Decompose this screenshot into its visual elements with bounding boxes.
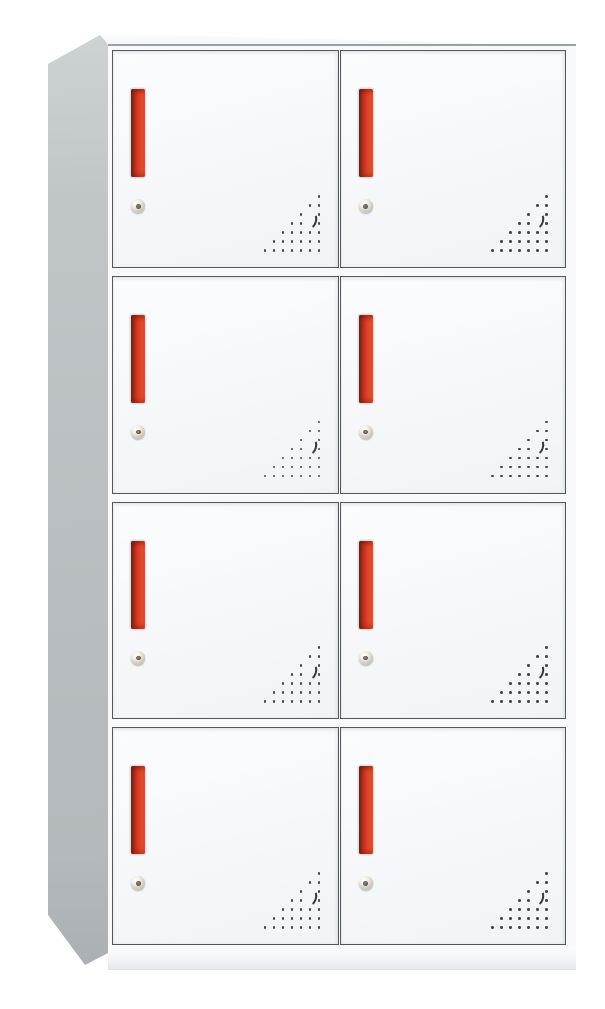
vent-hole-dot bbox=[318, 890, 321, 893]
vent-hole-dot bbox=[291, 249, 294, 252]
vent-hole-dot bbox=[518, 222, 521, 225]
vent-hole-dot bbox=[518, 917, 521, 920]
vent-hole-dot bbox=[536, 700, 539, 703]
vent-hole-dot bbox=[318, 682, 321, 685]
vent-hole-dot bbox=[545, 240, 548, 243]
vent-hole-dot bbox=[291, 691, 294, 694]
vent-hole-dot bbox=[273, 691, 276, 694]
vent-hole-dot bbox=[282, 682, 285, 685]
cabinet-front-face bbox=[108, 44, 576, 970]
vent-hole-dot bbox=[545, 691, 548, 694]
keyhole-lock bbox=[359, 876, 373, 890]
locker-door-r3c1 bbox=[112, 502, 339, 720]
vent-hole-dot bbox=[264, 700, 267, 703]
vent-hole-dot bbox=[309, 204, 312, 207]
keyhole-lock bbox=[131, 876, 145, 890]
vent-hole-dot bbox=[300, 249, 303, 252]
vent-hole-dot bbox=[509, 457, 512, 460]
vent-hole-dot bbox=[491, 475, 494, 478]
vent-hole-dot bbox=[300, 222, 303, 225]
vent-hole-dot bbox=[536, 655, 539, 658]
vent-hole-dot bbox=[300, 439, 303, 442]
vent-hole-dot bbox=[273, 249, 276, 252]
vent-hole-dot bbox=[291, 908, 294, 911]
vent-hole-dot bbox=[536, 908, 539, 911]
vent-hole-dot bbox=[318, 439, 321, 442]
door-handle bbox=[359, 89, 373, 177]
locker-door-r2c2 bbox=[340, 276, 567, 494]
vent-hole-dot bbox=[309, 682, 312, 685]
vent-hole-dot bbox=[300, 899, 303, 902]
vent-hole-dot bbox=[318, 646, 321, 649]
vent-hole-dot bbox=[300, 231, 303, 234]
keyhole-lock bbox=[359, 651, 373, 665]
vent-hole-dot bbox=[527, 682, 530, 685]
vent-hole-dot bbox=[509, 691, 512, 694]
vent-hole-dot bbox=[527, 691, 530, 694]
vent-hole-dot bbox=[509, 926, 512, 929]
vent-hole-dot bbox=[545, 421, 548, 424]
vent-hole-dot bbox=[309, 240, 312, 243]
vent-hole-dot bbox=[291, 240, 294, 243]
vent-hole-dot bbox=[264, 249, 267, 252]
vent-hole-dot bbox=[291, 222, 294, 225]
vent-hole-dot bbox=[536, 249, 539, 252]
vent-hole-dot bbox=[518, 700, 521, 703]
vent-hole-dot bbox=[545, 439, 548, 442]
vent-hole-dot bbox=[318, 231, 321, 234]
ventilation-holes bbox=[488, 192, 551, 255]
vent-hole-dot bbox=[291, 448, 294, 451]
vent-hole-dot bbox=[318, 204, 321, 207]
vent-crescent-mark bbox=[530, 888, 546, 908]
vent-hole-dot bbox=[536, 231, 539, 234]
door-handle bbox=[359, 766, 373, 854]
vent-hole-dot bbox=[518, 466, 521, 469]
vent-hole-dot bbox=[318, 908, 321, 911]
vent-hole-dot bbox=[536, 430, 539, 433]
vent-hole-dot bbox=[518, 475, 521, 478]
vent-hole-dot bbox=[318, 664, 321, 667]
vent-hole-dot bbox=[318, 673, 321, 676]
vent-crescent-mark bbox=[530, 210, 546, 230]
vent-hole-dot bbox=[318, 872, 321, 875]
vent-hole-dot bbox=[536, 691, 539, 694]
vent-hole-dot bbox=[545, 448, 548, 451]
vent-hole-dot bbox=[545, 700, 548, 703]
vent-hole-dot bbox=[536, 466, 539, 469]
vent-hole-dot bbox=[509, 249, 512, 252]
vent-hole-dot bbox=[527, 700, 530, 703]
vent-hole-dot bbox=[545, 872, 548, 875]
vent-hole-dot bbox=[291, 673, 294, 676]
vent-hole-dot bbox=[309, 430, 312, 433]
vent-hole-dot bbox=[545, 682, 548, 685]
vent-crescent-mark bbox=[302, 436, 318, 456]
vent-hole-dot bbox=[527, 222, 530, 225]
vent-hole-dot bbox=[264, 475, 267, 478]
vent-hole-dot bbox=[536, 240, 539, 243]
vent-hole-dot bbox=[318, 655, 321, 658]
vent-hole-dot bbox=[291, 466, 294, 469]
vent-hole-dot bbox=[282, 917, 285, 920]
vent-hole-dot bbox=[282, 240, 285, 243]
vent-hole-dot bbox=[545, 890, 548, 893]
vent-hole-dot bbox=[527, 240, 530, 243]
vent-hole-dot bbox=[545, 646, 548, 649]
vent-hole-dot bbox=[318, 899, 321, 902]
vent-crescent-mark bbox=[530, 436, 546, 456]
vent-hole-dot bbox=[518, 448, 521, 451]
vent-hole-dot bbox=[527, 890, 530, 893]
vent-hole-dot bbox=[318, 430, 321, 433]
vent-hole-dot bbox=[282, 231, 285, 234]
locker-door-r2c1 bbox=[112, 276, 339, 494]
cabinet-side-panel bbox=[48, 33, 110, 965]
vent-hole-dot bbox=[309, 691, 312, 694]
door-handle bbox=[131, 541, 145, 629]
vent-hole-dot bbox=[500, 240, 503, 243]
vent-hole-dot bbox=[282, 926, 285, 929]
vent-hole-dot bbox=[545, 881, 548, 884]
vent-hole-dot bbox=[500, 700, 503, 703]
vent-hole-dot bbox=[509, 917, 512, 920]
door-handle bbox=[359, 541, 373, 629]
vent-hole-dot bbox=[536, 457, 539, 460]
vent-hole-dot bbox=[527, 475, 530, 478]
vent-hole-dot bbox=[545, 457, 548, 460]
vent-hole-dot bbox=[545, 466, 548, 469]
locker-door-r4c1 bbox=[112, 727, 339, 945]
vent-hole-dot bbox=[545, 204, 548, 207]
vent-hole-dot bbox=[300, 457, 303, 460]
locker-door-r1c2 bbox=[340, 50, 567, 268]
vent-hole-dot bbox=[545, 195, 548, 198]
vent-hole-dot bbox=[491, 700, 494, 703]
vent-hole-dot bbox=[300, 448, 303, 451]
vent-hole-dot bbox=[536, 475, 539, 478]
vent-hole-dot bbox=[273, 475, 276, 478]
vent-hole-dot bbox=[318, 917, 321, 920]
vent-hole-dot bbox=[318, 881, 321, 884]
vent-hole-dot bbox=[545, 899, 548, 902]
vent-hole-dot bbox=[309, 700, 312, 703]
vent-hole-dot bbox=[545, 430, 548, 433]
vent-hole-dot bbox=[300, 890, 303, 893]
vent-hole-dot bbox=[509, 475, 512, 478]
vent-hole-dot bbox=[282, 475, 285, 478]
vent-hole-dot bbox=[273, 917, 276, 920]
door-handle bbox=[131, 766, 145, 854]
vent-hole-dot bbox=[318, 457, 321, 460]
vent-hole-dot bbox=[518, 926, 521, 929]
vent-hole-dot bbox=[500, 917, 503, 920]
vent-hole-dot bbox=[509, 231, 512, 234]
vent-hole-dot bbox=[527, 926, 530, 929]
vent-hole-dot bbox=[527, 213, 530, 216]
vent-hole-dot bbox=[291, 899, 294, 902]
vent-hole-dot bbox=[536, 917, 539, 920]
vent-hole-dot bbox=[300, 466, 303, 469]
vent-hole-dot bbox=[500, 475, 503, 478]
vent-hole-dot bbox=[545, 673, 548, 676]
vent-hole-dot bbox=[291, 231, 294, 234]
vent-hole-dot bbox=[282, 457, 285, 460]
vent-hole-dot bbox=[282, 466, 285, 469]
vent-crescent-mark bbox=[302, 662, 318, 682]
vent-hole-dot bbox=[309, 908, 312, 911]
vent-hole-dot bbox=[291, 475, 294, 478]
vent-hole-dot bbox=[500, 466, 503, 469]
ventilation-holes bbox=[488, 869, 551, 932]
vent-hole-dot bbox=[291, 457, 294, 460]
locker-door-r4c2 bbox=[340, 727, 567, 945]
vent-hole-dot bbox=[309, 457, 312, 460]
vent-hole-dot bbox=[300, 926, 303, 929]
vent-hole-dot bbox=[545, 231, 548, 234]
vent-hole-dot bbox=[527, 439, 530, 442]
vent-hole-dot bbox=[318, 240, 321, 243]
vent-hole-dot bbox=[545, 917, 548, 920]
vent-hole-dot bbox=[545, 664, 548, 667]
locker-door-r3c2 bbox=[340, 502, 567, 720]
vent-hole-dot bbox=[545, 222, 548, 225]
vent-hole-dot bbox=[309, 881, 312, 884]
vent-crescent-mark bbox=[302, 888, 318, 908]
vent-hole-dot bbox=[509, 700, 512, 703]
keyhole-lock bbox=[359, 425, 373, 439]
vent-hole-dot bbox=[273, 700, 276, 703]
keyhole-lock bbox=[359, 199, 373, 213]
vent-hole-dot bbox=[291, 917, 294, 920]
vent-hole-dot bbox=[300, 908, 303, 911]
keyhole-lock bbox=[131, 199, 145, 213]
vent-hole-dot bbox=[536, 926, 539, 929]
vent-hole-dot bbox=[527, 249, 530, 252]
vent-hole-dot bbox=[545, 249, 548, 252]
vent-hole-dot bbox=[264, 926, 267, 929]
vent-hole-dot bbox=[300, 213, 303, 216]
vent-hole-dot bbox=[318, 195, 321, 198]
locker-cabinet-photo bbox=[0, 0, 605, 1009]
vent-hole-dot bbox=[318, 466, 321, 469]
vent-hole-dot bbox=[518, 908, 521, 911]
vent-hole-dot bbox=[282, 249, 285, 252]
cabinet-base-plinth bbox=[108, 945, 576, 970]
vent-hole-dot bbox=[318, 448, 321, 451]
vent-hole-dot bbox=[309, 917, 312, 920]
vent-hole-dot bbox=[300, 700, 303, 703]
ventilation-holes bbox=[261, 192, 324, 255]
ventilation-holes bbox=[261, 418, 324, 481]
vent-hole-dot bbox=[500, 691, 503, 694]
vent-hole-dot bbox=[527, 664, 530, 667]
locker-door-r1c1 bbox=[112, 50, 339, 268]
vent-hole-dot bbox=[527, 448, 530, 451]
vent-hole-dot bbox=[318, 700, 321, 703]
vent-hole-dot bbox=[300, 673, 303, 676]
vent-hole-dot bbox=[527, 466, 530, 469]
vent-hole-dot bbox=[300, 664, 303, 667]
vent-hole-dot bbox=[318, 222, 321, 225]
keyhole-lock bbox=[131, 651, 145, 665]
vent-hole-dot bbox=[318, 691, 321, 694]
vent-hole-dot bbox=[527, 231, 530, 234]
vent-hole-dot bbox=[500, 926, 503, 929]
door-handle bbox=[131, 89, 145, 177]
vent-hole-dot bbox=[291, 682, 294, 685]
vent-hole-dot bbox=[309, 231, 312, 234]
vent-hole-dot bbox=[500, 249, 503, 252]
vent-hole-dot bbox=[491, 249, 494, 252]
vent-hole-dot bbox=[545, 475, 548, 478]
vent-hole-dot bbox=[309, 926, 312, 929]
vent-hole-dot bbox=[309, 249, 312, 252]
vent-hole-dot bbox=[518, 673, 521, 676]
vent-hole-dot bbox=[318, 421, 321, 424]
vent-hole-dot bbox=[273, 926, 276, 929]
ventilation-holes bbox=[488, 643, 551, 706]
vent-hole-dot bbox=[527, 908, 530, 911]
vent-hole-dot bbox=[318, 213, 321, 216]
vent-hole-dot bbox=[273, 240, 276, 243]
vent-hole-dot bbox=[518, 682, 521, 685]
ventilation-holes bbox=[488, 418, 551, 481]
vent-hole-dot bbox=[318, 475, 321, 478]
vent-hole-dot bbox=[282, 691, 285, 694]
vent-hole-dot bbox=[309, 475, 312, 478]
vent-hole-dot bbox=[509, 240, 512, 243]
ventilation-holes bbox=[261, 869, 324, 932]
vent-hole-dot bbox=[518, 249, 521, 252]
vent-hole-dot bbox=[309, 466, 312, 469]
door-handle bbox=[131, 315, 145, 403]
vent-hole-dot bbox=[282, 908, 285, 911]
door-handle bbox=[359, 315, 373, 403]
vent-hole-dot bbox=[509, 682, 512, 685]
door-grid bbox=[112, 50, 566, 945]
vent-hole-dot bbox=[527, 899, 530, 902]
vent-hole-dot bbox=[527, 917, 530, 920]
vent-hole-dot bbox=[545, 655, 548, 658]
vent-hole-dot bbox=[282, 700, 285, 703]
vent-hole-dot bbox=[300, 475, 303, 478]
vent-hole-dot bbox=[536, 881, 539, 884]
vent-hole-dot bbox=[527, 457, 530, 460]
vent-hole-dot bbox=[518, 899, 521, 902]
vent-hole-dot bbox=[518, 231, 521, 234]
vent-hole-dot bbox=[518, 240, 521, 243]
vent-hole-dot bbox=[545, 213, 548, 216]
vent-hole-dot bbox=[509, 466, 512, 469]
vent-hole-dot bbox=[300, 682, 303, 685]
vent-hole-dot bbox=[309, 655, 312, 658]
vent-hole-dot bbox=[291, 926, 294, 929]
vent-hole-dot bbox=[300, 691, 303, 694]
vent-hole-dot bbox=[300, 917, 303, 920]
keyhole-lock bbox=[131, 425, 145, 439]
vent-hole-dot bbox=[536, 204, 539, 207]
vent-hole-dot bbox=[318, 926, 321, 929]
vent-hole-dot bbox=[318, 249, 321, 252]
vent-hole-dot bbox=[545, 908, 548, 911]
vent-hole-dot bbox=[509, 908, 512, 911]
vent-crescent-mark bbox=[530, 662, 546, 682]
vent-hole-dot bbox=[273, 466, 276, 469]
vent-hole-dot bbox=[536, 682, 539, 685]
vent-hole-dot bbox=[518, 691, 521, 694]
vent-hole-dot bbox=[491, 926, 494, 929]
vent-hole-dot bbox=[300, 240, 303, 243]
vent-hole-dot bbox=[527, 673, 530, 676]
vent-crescent-mark bbox=[302, 210, 318, 230]
vent-hole-dot bbox=[518, 457, 521, 460]
vent-hole-dot bbox=[545, 926, 548, 929]
ventilation-holes bbox=[261, 643, 324, 706]
vent-hole-dot bbox=[291, 700, 294, 703]
